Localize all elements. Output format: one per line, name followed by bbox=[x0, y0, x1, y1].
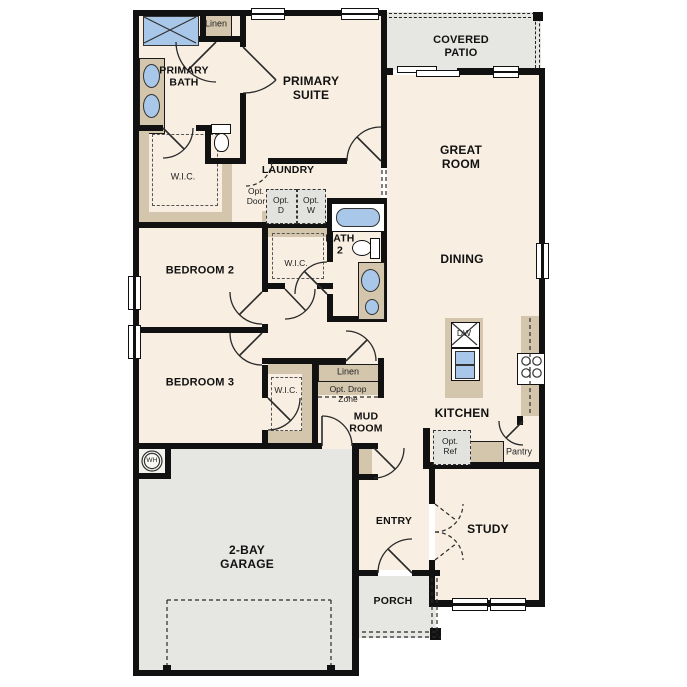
wall-hall-a bbox=[262, 222, 268, 292]
wic-primary-shelf-right bbox=[222, 158, 232, 212]
wall-right-a bbox=[539, 68, 545, 245]
bath2-sink bbox=[361, 269, 380, 292]
window-study-1 bbox=[452, 598, 488, 611]
window-bedroom3 bbox=[128, 325, 141, 359]
wall-patio-b bbox=[457, 68, 495, 75]
wall-wic3-top bbox=[262, 358, 312, 364]
label-bath2: BATH 2 bbox=[325, 233, 354, 258]
wic-primary-shelf-left bbox=[139, 131, 149, 212]
wall-linen2-right bbox=[378, 358, 384, 398]
label-bedroom3: BEDROOM 3 bbox=[166, 377, 234, 390]
label-linen-bath: Linen bbox=[205, 19, 227, 30]
label-mud-room: MUD ROOM bbox=[349, 411, 382, 436]
pantry-counter bbox=[466, 441, 504, 463]
wall-closet-bottom bbox=[352, 474, 378, 480]
stove bbox=[517, 353, 545, 385]
window-suite-2 bbox=[341, 8, 379, 20]
toilet2-tank bbox=[370, 238, 380, 259]
label-kitchen: KITCHEN bbox=[435, 406, 490, 420]
label-dishwasher: DW bbox=[457, 328, 471, 338]
label-opt-dryer: Opt. D bbox=[273, 195, 289, 215]
wall-left bbox=[133, 10, 139, 449]
label-laundry: LAUNDRY bbox=[262, 164, 314, 176]
window-dining bbox=[536, 243, 549, 279]
tub bbox=[336, 208, 380, 227]
wall-garage-bottom bbox=[133, 670, 359, 676]
wall-wic2-bottom-b bbox=[317, 283, 333, 289]
window-bedroom2 bbox=[128, 276, 141, 310]
wall-closet-top bbox=[352, 443, 378, 449]
kitchen-sink-basin-1 bbox=[455, 351, 475, 365]
label-wic-primary: W.I.C. bbox=[171, 172, 196, 183]
floor-plan: COVERED PATIO GREAT ROOM DINING KITCHEN … bbox=[0, 0, 687, 687]
label-pantry: Pantry bbox=[506, 447, 532, 458]
label-primary-suite: PRIMARY SUITE bbox=[283, 74, 339, 102]
window-great-room bbox=[493, 66, 519, 78]
label-opt-drop-zone: Opt. Drop Zone bbox=[330, 384, 367, 404]
label-opt-washer: Opt. W bbox=[303, 195, 319, 215]
wall-suite-left-b bbox=[240, 93, 246, 164]
kitchen-sink-basin-2 bbox=[455, 365, 475, 379]
wall-bed-divider bbox=[133, 327, 268, 333]
label-porch: PORCH bbox=[374, 595, 413, 607]
label-opt-ref: Opt. Ref bbox=[442, 436, 458, 456]
wall-wh-right bbox=[165, 449, 171, 476]
wall-central-upper bbox=[381, 10, 387, 168]
wall-study-left-a bbox=[429, 463, 435, 504]
wall-mud-left bbox=[312, 358, 318, 446]
label-garage: 2-BAY GARAGE bbox=[220, 543, 274, 571]
wall-entry-bottom-a bbox=[352, 570, 378, 576]
patio-post bbox=[533, 12, 543, 21]
wall-bath-floor-a bbox=[133, 125, 163, 131]
label-covered-patio: COVERED PATIO bbox=[433, 34, 489, 60]
label-primary-bath: PRIMARY BATH bbox=[159, 65, 208, 90]
label-great-room: GREAT ROOM bbox=[440, 143, 482, 171]
label-dining: DINING bbox=[440, 252, 483, 266]
label-study: STUDY bbox=[467, 522, 509, 536]
wall-wic2-bottom-a bbox=[262, 283, 285, 289]
label-entry: ENTRY bbox=[376, 515, 412, 527]
wic-bed2-shelf-line bbox=[272, 233, 324, 279]
wall-bed2-top bbox=[133, 222, 268, 228]
wall-pantry-stub bbox=[517, 416, 523, 425]
entry-closet-shelf bbox=[358, 449, 372, 474]
wall-hall-c bbox=[262, 365, 268, 398]
wall-hall-b bbox=[262, 324, 268, 333]
label-linen-hall: Linen bbox=[337, 367, 359, 378]
wall-linen2-top bbox=[312, 358, 346, 364]
label-bedroom2: BEDROOM 2 bbox=[166, 265, 234, 278]
bath-sink-2 bbox=[143, 94, 160, 118]
wall-garage-left bbox=[133, 449, 139, 676]
bath2-fixture bbox=[365, 299, 379, 315]
toilet2-bowl bbox=[352, 240, 372, 256]
label-wic-bed3: W.I.C. bbox=[274, 385, 297, 395]
label-wic-bed2: W.I.C. bbox=[284, 258, 307, 268]
wall-right-b bbox=[539, 275, 545, 607]
label-opt-door: Opt. Door bbox=[247, 186, 265, 206]
bath-sink-1 bbox=[143, 64, 160, 88]
wall-hall-d bbox=[262, 430, 268, 449]
porch-post bbox=[430, 628, 441, 640]
wic-primary-shelf-bottom bbox=[139, 212, 232, 222]
window-study-2 bbox=[490, 598, 526, 611]
label-water-heater: WH bbox=[146, 457, 157, 465]
wall-wh-bottom bbox=[133, 473, 171, 479]
wall-entry-bottom-b bbox=[412, 570, 440, 576]
window-suite-1 bbox=[251, 8, 285, 20]
patio-slider-panel-2 bbox=[416, 70, 460, 77]
wall-linen1-bottom bbox=[196, 36, 246, 42]
shower bbox=[143, 16, 199, 46]
toilet1-bowl bbox=[214, 133, 229, 152]
